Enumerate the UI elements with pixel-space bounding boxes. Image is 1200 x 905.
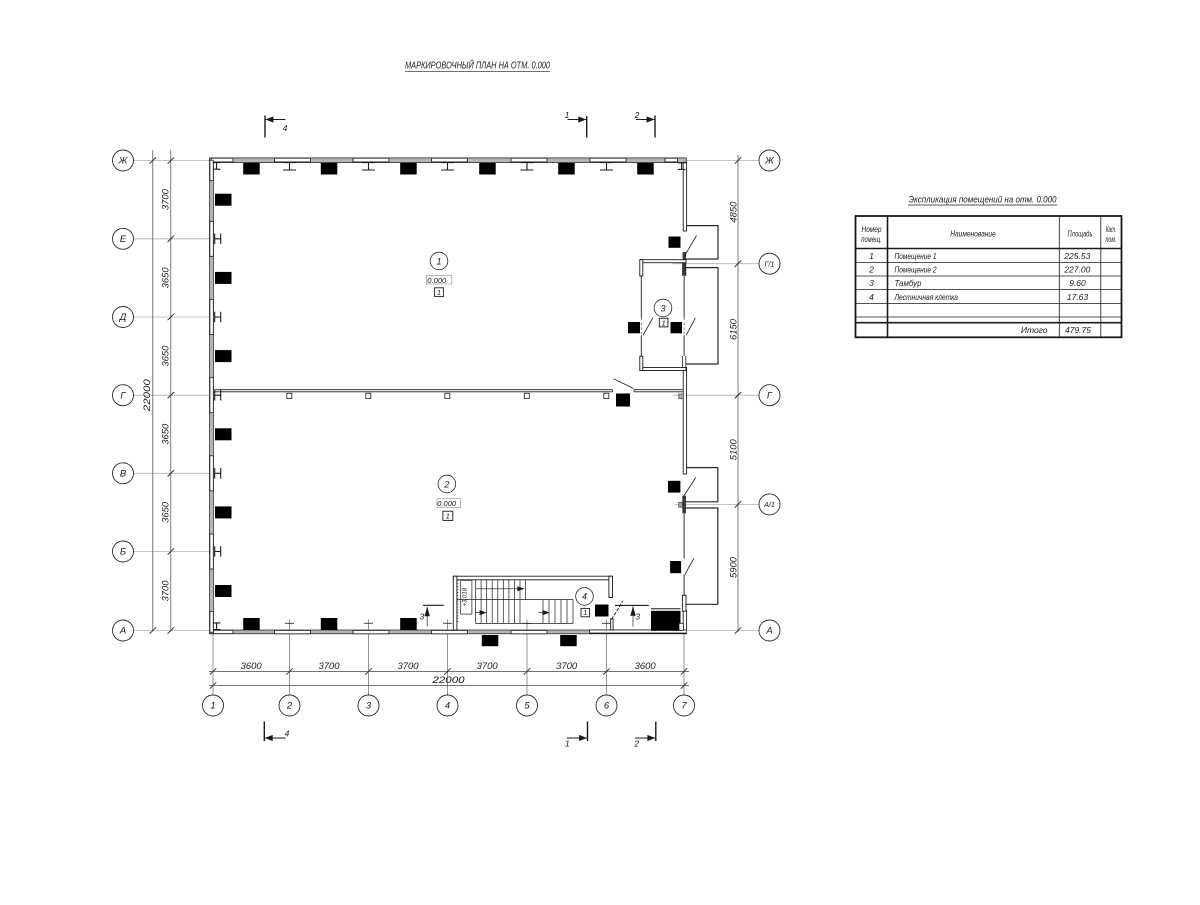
svg-text:Г: Г xyxy=(120,390,126,401)
svg-text:Экспликация помещений на отм.: Экспликация помещений на отм. 0.000 xyxy=(909,194,1058,205)
svg-text:1: 1 xyxy=(869,251,874,261)
svg-text:3: 3 xyxy=(366,701,372,712)
svg-text:225.53: 225.53 xyxy=(1063,251,1090,261)
svg-text:3650: 3650 xyxy=(160,345,170,366)
svg-text:9.60: 9.60 xyxy=(1069,278,1086,288)
svg-text:0.000: 0.000 xyxy=(437,499,457,508)
svg-text:0.000: 0.000 xyxy=(427,276,447,285)
svg-text:22000: 22000 xyxy=(142,379,152,412)
svg-text:А: А xyxy=(765,626,772,637)
svg-text:Б: Б xyxy=(120,547,126,558)
svg-text:Тамбур: Тамбур xyxy=(895,278,922,288)
svg-text:479.75: 479.75 xyxy=(1065,325,1091,335)
svg-text:Итого: Итого xyxy=(1021,325,1048,335)
svg-text:Помещение 2: Помещение 2 xyxy=(895,265,937,275)
svg-text:3700: 3700 xyxy=(319,661,340,671)
svg-text:А: А xyxy=(119,626,126,637)
svg-text:Е: Е xyxy=(120,234,127,245)
svg-text:Ж: Ж xyxy=(118,156,129,167)
svg-text:2: 2 xyxy=(286,701,293,712)
svg-text:3700: 3700 xyxy=(160,580,170,601)
svg-text:1: 1 xyxy=(436,256,441,266)
svg-text:6: 6 xyxy=(604,701,610,712)
svg-text:Кат.: Кат. xyxy=(1106,224,1117,234)
svg-text:1: 1 xyxy=(565,738,570,748)
svg-text:1: 1 xyxy=(565,110,570,120)
svg-text:1: 1 xyxy=(210,701,215,712)
svg-text:4: 4 xyxy=(869,292,874,302)
svg-text:3600: 3600 xyxy=(635,661,656,671)
svg-text:Д: Д xyxy=(119,312,127,323)
svg-text:3650: 3650 xyxy=(160,267,170,288)
svg-text:В: В xyxy=(120,469,127,480)
svg-text:3700: 3700 xyxy=(398,661,419,671)
svg-text:3700: 3700 xyxy=(160,189,170,210)
svg-text:Г: Г xyxy=(767,390,773,401)
svg-text:А/1: А/1 xyxy=(763,500,775,509)
svg-text:Площадь: Площадь xyxy=(1068,229,1093,239)
svg-text:5: 5 xyxy=(524,701,530,712)
svg-text:4: 4 xyxy=(582,592,587,602)
svg-text:227.00: 227.00 xyxy=(1063,265,1090,275)
svg-text:4: 4 xyxy=(285,729,290,739)
svg-text:3650: 3650 xyxy=(160,502,170,523)
svg-text:3650: 3650 xyxy=(160,424,170,445)
svg-text:22000: 22000 xyxy=(431,675,464,685)
svg-text:3: 3 xyxy=(635,612,640,622)
svg-text:+3.018: +3.018 xyxy=(462,587,468,606)
svg-text:Г/1: Г/1 xyxy=(765,259,775,268)
svg-text:2: 2 xyxy=(634,110,640,120)
svg-text:1: 1 xyxy=(437,288,441,297)
svg-text:3700: 3700 xyxy=(556,661,577,671)
svg-text:1: 1 xyxy=(662,318,666,327)
svg-text:помещ.: помещ. xyxy=(861,234,882,244)
svg-text:4850: 4850 xyxy=(728,201,738,222)
svg-text:4: 4 xyxy=(283,123,288,133)
svg-text:1: 1 xyxy=(583,608,587,617)
svg-text:пом.: пом. xyxy=(1106,234,1117,244)
svg-text:3: 3 xyxy=(420,612,425,622)
svg-text:3: 3 xyxy=(869,278,874,288)
svg-text:2: 2 xyxy=(443,479,449,489)
svg-text:Номер: Номер xyxy=(862,224,882,234)
svg-text:17.63: 17.63 xyxy=(1067,292,1089,302)
svg-text:1: 1 xyxy=(446,512,450,521)
svg-text:3600: 3600 xyxy=(241,661,262,671)
svg-text:Ж: Ж xyxy=(764,156,775,167)
svg-text:5900: 5900 xyxy=(728,557,738,578)
svg-text:МАРКИРОВОЧНЫЙ ПЛАН НА ОТМ. 0.0: МАРКИРОВОЧНЫЙ ПЛАН НА ОТМ. 0.000 xyxy=(405,60,550,72)
svg-text:2: 2 xyxy=(868,265,874,275)
svg-text:3: 3 xyxy=(660,303,665,313)
svg-text:5100: 5100 xyxy=(728,439,738,460)
svg-text:6150: 6150 xyxy=(728,319,738,340)
svg-text:3700: 3700 xyxy=(477,661,498,671)
svg-text:4: 4 xyxy=(445,701,450,712)
svg-text:7: 7 xyxy=(681,701,687,712)
svg-text:Наименование: Наименование xyxy=(950,229,996,239)
svg-text:Помещение 1: Помещение 1 xyxy=(895,251,937,261)
svg-text:Лестничная клетка: Лестничная клетка xyxy=(894,292,958,302)
svg-text:2: 2 xyxy=(633,738,639,748)
